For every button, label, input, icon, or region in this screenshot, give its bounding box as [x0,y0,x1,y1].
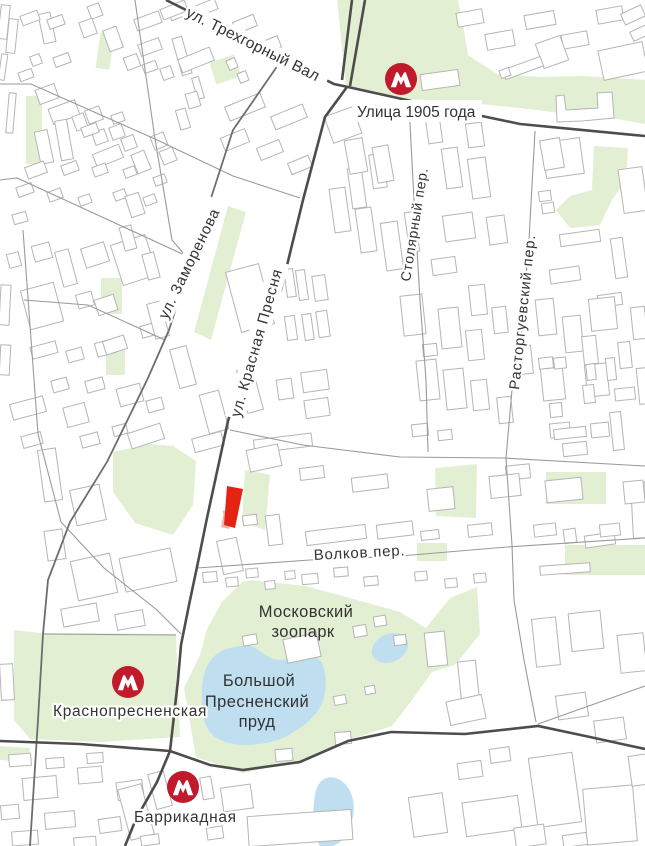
svg-text:Краснопресненская: Краснопресненская [53,703,207,720]
svg-text:зоопарк: зоопарк [271,623,334,641]
svg-text:Баррикадная: Баррикадная [134,809,237,826]
svg-text:пруд: пруд [239,713,276,731]
svg-text:Московский: Московский [259,603,353,621]
svg-text:Большой: Большой [223,672,295,690]
svg-text:Улица 1905 года: Улица 1905 года [357,104,476,121]
svg-text:Пресненский: Пресненский [205,693,309,711]
